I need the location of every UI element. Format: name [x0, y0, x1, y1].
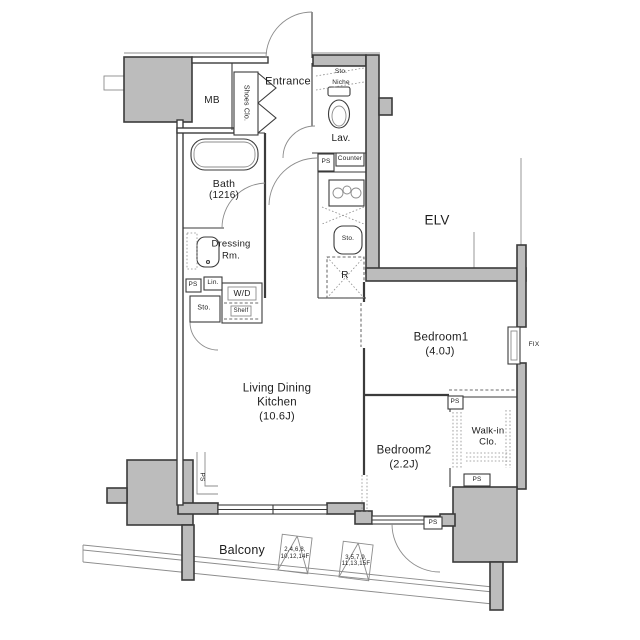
label-storage-kitchen: Sto.	[342, 236, 354, 243]
label-dressing-1: Dressing	[211, 239, 250, 249]
label-ldk-1: Living Dining	[243, 383, 311, 395]
storage-door-arc	[190, 322, 218, 350]
label-elevator: ELV	[424, 213, 449, 227]
label-hatch-even-2: 10,12,14F	[281, 554, 310, 560]
label-storage-top: Sto.	[335, 69, 347, 76]
toilet-icon	[328, 87, 350, 128]
label-hatch-even-1: 2,4,6,8,	[284, 547, 306, 553]
label-washer-dryer: W/D	[233, 289, 250, 298]
label-walkin-2: Clo.	[479, 437, 497, 447]
label-shelf: Shelf	[234, 308, 249, 314]
label-counter: Counter	[338, 156, 363, 163]
kitchen-counter-lines	[322, 207, 364, 224]
pillar-top-left	[124, 57, 192, 122]
label-meter-box: MB	[204, 96, 219, 106]
label-hatch-odd-2: 11,13,15F	[342, 561, 370, 567]
label-balcony: Balcony	[219, 544, 265, 557]
elv-shaft-lines	[474, 158, 521, 268]
label-fix-window: FIX	[529, 342, 540, 349]
wall-west	[177, 120, 183, 505]
label-refrigerator: R	[341, 271, 348, 281]
label-ldk-size: (10.6J)	[259, 412, 295, 423]
label-ps-kitchen: PS	[321, 159, 330, 166]
label-ps-walkin-top: PS	[450, 399, 459, 406]
pillar-bottom-right	[453, 487, 517, 562]
wall-bedroom1-top	[366, 268, 526, 281]
label-bath: Bath	[213, 179, 235, 190]
label-bedroom1: Bedroom1	[414, 332, 469, 344]
floor-plan: Entrance Shoes Clo. MB Sto. Niche Lav. P…	[0, 0, 640, 640]
label-niche: Niche	[332, 80, 350, 87]
entrance-door-arc	[266, 12, 312, 58]
label-bedroom1-size: (4.0J)	[425, 347, 454, 358]
label-linen: Lin.	[207, 280, 218, 287]
label-ldk-2: Kitchen	[257, 397, 297, 409]
stove-icon	[329, 180, 364, 206]
label-bath-size: (1216)	[209, 191, 239, 201]
label-storage-hall: Sto.	[197, 305, 210, 312]
label-shoes-closet: Shoes Clo.	[243, 85, 250, 121]
label-bedroom2-size: (2.2J)	[389, 460, 418, 471]
bathtub-icon	[191, 139, 258, 170]
wall-east-upper	[366, 55, 379, 273]
balcony-door-arc	[392, 524, 440, 572]
label-ps-walkin-bottom: PS	[472, 477, 481, 484]
plan-drawing	[0, 0, 640, 640]
label-ps-dressing: PS	[188, 282, 197, 289]
label-ps-west: PS	[198, 472, 205, 481]
label-lavatory: Lav.	[332, 134, 351, 144]
label-bedroom2: Bedroom2	[377, 445, 432, 457]
wall-north	[192, 57, 268, 63]
doors	[190, 12, 440, 572]
label-walkin-1: Walk-in	[472, 426, 505, 436]
label-ps-bedroom2: PS	[428, 520, 437, 527]
hall-door-arc	[269, 158, 317, 205]
label-entrance: Entrance	[265, 77, 311, 88]
fix-window	[508, 327, 520, 364]
label-dressing-2: Rm.	[222, 251, 240, 261]
lavatory-door-arc	[283, 126, 315, 158]
